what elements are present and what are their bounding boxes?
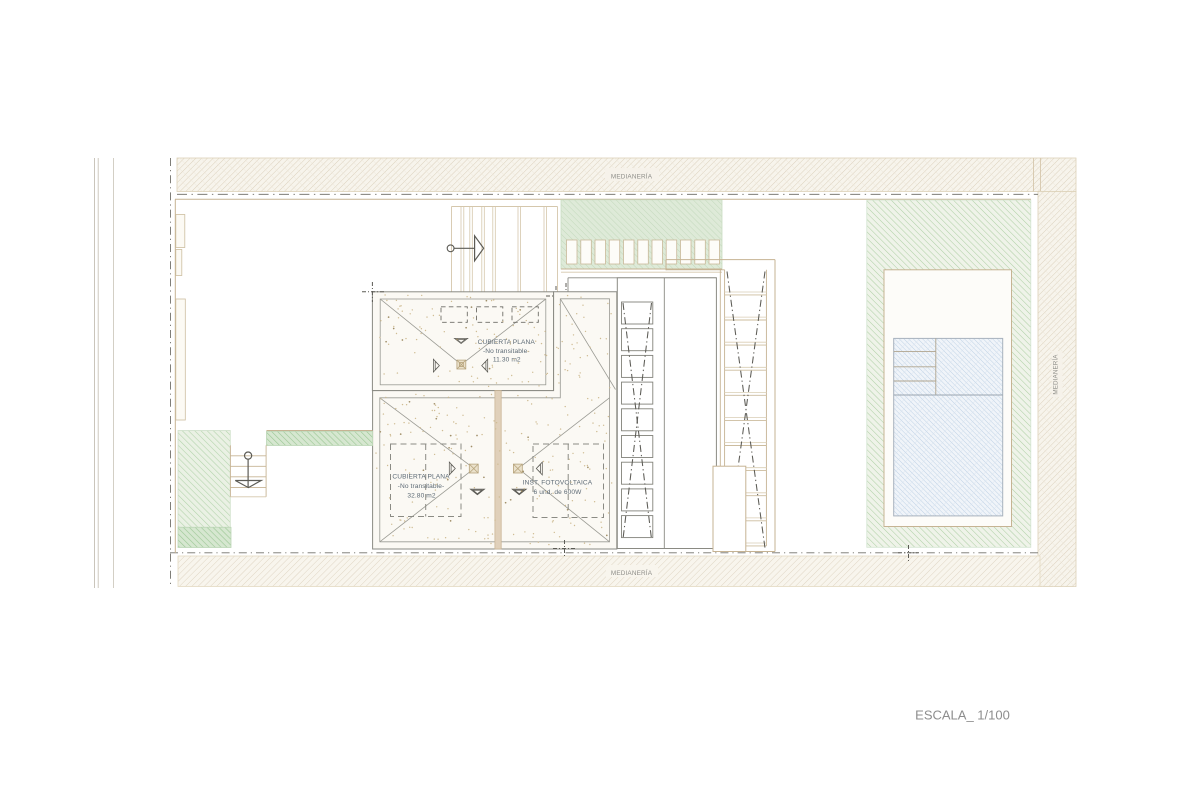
svg-text:MEDIANERÍA: MEDIANERÍA [611, 568, 653, 577]
svg-text:11.30 m2: 11.30 m2 [493, 357, 521, 364]
svg-text:CUBIERTA PLANA: CUBIERTA PLANA [392, 473, 450, 480]
svg-text:-No transitable-: -No transitable- [398, 483, 445, 490]
svg-text:MEDIANERÍA: MEDIANERÍA [611, 172, 653, 181]
svg-text:6 und. de 600W: 6 und. de 600W [534, 489, 583, 496]
svg-text:ESCALA_ 1/100: ESCALA_ 1/100 [915, 708, 1010, 723]
svg-text:CUBIERTA PLANA: CUBIERTA PLANA [478, 339, 536, 346]
svg-text:32.80 m2: 32.80 m2 [407, 492, 436, 499]
svg-text:-No transitable-: -No transitable- [483, 348, 530, 355]
svg-text:MEDIANERÍA: MEDIANERÍA [1051, 354, 1060, 395]
